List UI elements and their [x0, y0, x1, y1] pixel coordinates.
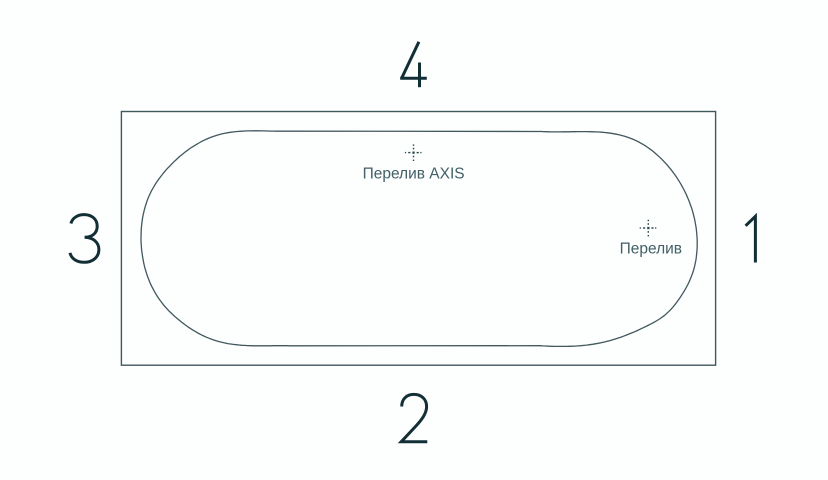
svg-text:Перелив AXIS: Перелив AXIS: [363, 166, 465, 183]
svg-text:Перелив: Перелив: [620, 240, 682, 257]
